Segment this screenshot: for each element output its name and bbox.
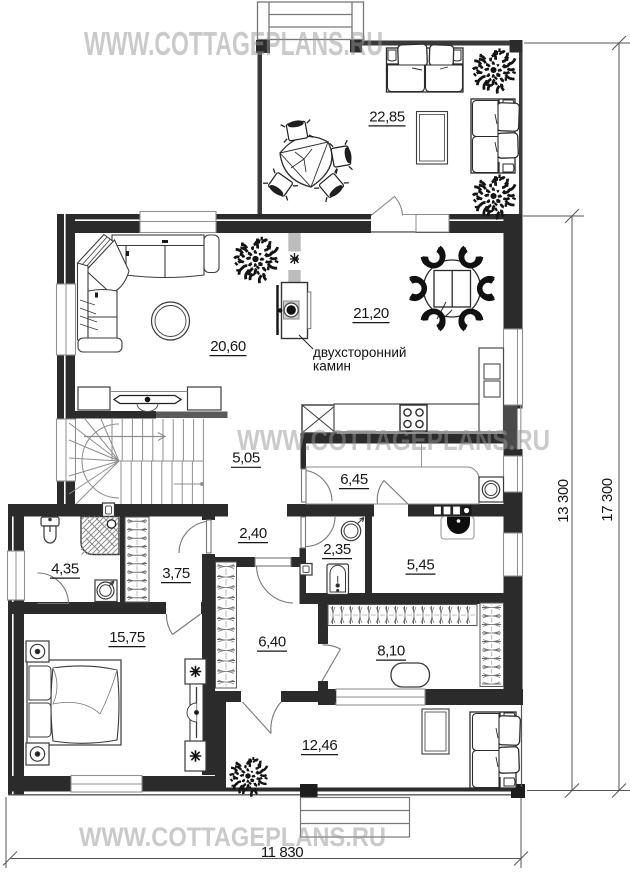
svg-text:17 300: 17 300 bbox=[599, 478, 616, 522]
svg-text:5,45: 5,45 bbox=[407, 557, 435, 574]
svg-text:6,40: 6,40 bbox=[258, 634, 286, 651]
svg-text:WWW.COTTAGEPLANS.RU: WWW.COTTAGEPLANS.RU bbox=[84, 25, 383, 62]
svg-text:12,46: 12,46 bbox=[302, 737, 338, 754]
svg-text:4,35: 4,35 bbox=[51, 561, 79, 578]
svg-text:WWW.COTTAGEPLANS.RU: WWW.COTTAGEPLANS.RU bbox=[237, 425, 550, 457]
svg-text:13 300: 13 300 bbox=[555, 479, 572, 523]
svg-text:2,35: 2,35 bbox=[323, 541, 351, 558]
svg-text:20,60: 20,60 bbox=[210, 338, 246, 355]
svg-text:WWW.COTTAGEPLANS.RU: WWW.COTTAGEPLANS.RU bbox=[79, 822, 386, 852]
svg-text:21,20: 21,20 bbox=[353, 305, 389, 322]
svg-text:15,75: 15,75 bbox=[109, 629, 145, 646]
svg-text:3,75: 3,75 bbox=[162, 565, 190, 582]
svg-text:22,85: 22,85 bbox=[369, 108, 405, 125]
svg-text:8,10: 8,10 bbox=[377, 643, 405, 660]
svg-text:6,45: 6,45 bbox=[340, 471, 368, 488]
svg-text:2,40: 2,40 bbox=[239, 525, 267, 542]
svg-text:камин: камин bbox=[313, 359, 351, 374]
